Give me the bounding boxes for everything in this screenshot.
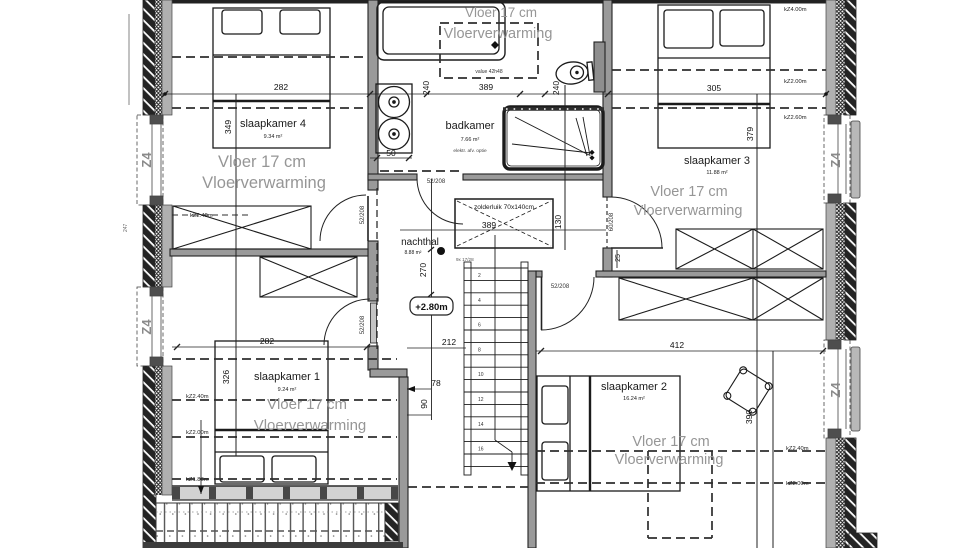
- svg-text:10: 10: [478, 372, 484, 378]
- svg-text:52/208: 52/208: [427, 179, 446, 185]
- svg-text:elektr. afv. optie: elektr. afv. optie: [453, 148, 487, 154]
- svg-text:11.88 m²: 11.88 m²: [706, 170, 727, 176]
- svg-text:4: 4: [478, 298, 481, 304]
- svg-text:90: 90: [419, 399, 429, 409]
- svg-text:9.24 m²: 9.24 m²: [278, 387, 297, 393]
- svg-text:7.66 m²: 7.66 m²: [461, 137, 480, 143]
- svg-text:Vloer 17 cm: Vloer 17 cm: [218, 153, 306, 171]
- svg-text:kZ1.88m: kZ1.88m: [186, 477, 209, 483]
- svg-text:Vloerverwarming: Vloerverwarming: [254, 417, 367, 434]
- svg-text:390: 390: [744, 410, 754, 424]
- svg-text:Vloerverwarming: Vloerverwarming: [444, 26, 553, 42]
- svg-text:305: 305: [707, 83, 721, 93]
- svg-text:slaapkamer 2: slaapkamer 2: [601, 381, 667, 393]
- svg-text:badkamer: badkamer: [446, 120, 495, 132]
- svg-text:349: 349: [223, 120, 233, 134]
- svg-text:52/208: 52/208: [551, 284, 570, 290]
- svg-text:8: 8: [478, 347, 481, 353]
- svg-text:240: 240: [551, 81, 561, 95]
- svg-text:kZ2.40m: kZ2.40m: [786, 446, 809, 452]
- svg-text:212: 212: [442, 337, 456, 347]
- svg-text:nachthal: nachthal: [401, 237, 439, 248]
- svg-text:kZ2.00m: kZ2.00m: [186, 430, 209, 436]
- svg-text:60/208: 60/208: [609, 212, 615, 231]
- svg-text:389: 389: [482, 220, 496, 230]
- svg-text:12: 12: [478, 397, 484, 403]
- svg-text:52/208: 52/208: [360, 205, 366, 224]
- svg-text:kZ2.40m: kZ2.40m: [186, 394, 209, 400]
- svg-text:282: 282: [274, 82, 288, 92]
- svg-text:slaapkamer 1: slaapkamer 1: [254, 371, 320, 383]
- svg-text:6: 6: [478, 323, 481, 329]
- svg-text:14: 14: [478, 422, 484, 428]
- svg-text:Vloerverwarming: Vloerverwarming: [202, 174, 326, 192]
- svg-text:kZ2.40m: kZ2.40m: [190, 213, 213, 219]
- svg-text:Z4: Z4: [139, 152, 154, 168]
- svg-text:52/208: 52/208: [360, 315, 366, 334]
- svg-text:2: 2: [478, 273, 481, 279]
- svg-text:270: 270: [418, 263, 428, 277]
- svg-text:slaapkamer 4: slaapkamer 4: [240, 118, 306, 130]
- svg-text:kZ2.60m: kZ2.60m: [784, 115, 807, 121]
- svg-text:130: 130: [553, 215, 563, 229]
- svg-text:+2.80m: +2.80m: [415, 302, 448, 313]
- svg-text:Vloerverwarming: Vloerverwarming: [615, 452, 724, 468]
- svg-text:kZ4.00m: kZ4.00m: [784, 7, 807, 13]
- svg-text:326: 326: [221, 370, 231, 384]
- svg-text:78: 78: [431, 378, 441, 388]
- svg-text:Vloer 17 cm: Vloer 17 cm: [465, 5, 537, 20]
- svg-text:389: 389: [479, 82, 493, 92]
- svg-text:50: 50: [386, 148, 396, 158]
- svg-text:412: 412: [670, 340, 684, 350]
- svg-text:8.88 m²: 8.88 m²: [405, 250, 422, 256]
- svg-text:9x 17/28: 9x 17/28: [456, 257, 474, 262]
- svg-text:Vloer 17 cm: Vloer 17 cm: [267, 396, 347, 413]
- svg-text:value 42h48: value 42h48: [475, 69, 502, 75]
- svg-text:Vloer 17 cm: Vloer 17 cm: [650, 184, 727, 200]
- svg-text:kZ2.00m: kZ2.00m: [786, 481, 809, 487]
- svg-text:25: 25: [615, 254, 622, 262]
- svg-text:282: 282: [260, 336, 274, 346]
- svg-text:zolderluik 70x140cm: zolderluik 70x140cm: [474, 204, 535, 211]
- svg-text:kZ2.00m: kZ2.00m: [784, 79, 807, 85]
- svg-text:Z4: Z4: [828, 382, 843, 398]
- svg-text:slaapkamer 3: slaapkamer 3: [684, 155, 750, 167]
- svg-text:9.34 m²: 9.34 m²: [264, 134, 283, 140]
- svg-text:Z4: Z4: [828, 152, 843, 168]
- svg-text:247: 247: [123, 223, 129, 232]
- svg-text:379: 379: [745, 127, 755, 141]
- svg-text:16.24 m²: 16.24 m²: [623, 396, 645, 402]
- svg-text:240: 240: [421, 81, 431, 95]
- svg-text:Z4: Z4: [139, 319, 154, 335]
- svg-text:16: 16: [478, 447, 484, 453]
- svg-text:Vloer 17 cm: Vloer 17 cm: [632, 434, 709, 450]
- svg-text:Vloerverwarming: Vloerverwarming: [634, 203, 743, 219]
